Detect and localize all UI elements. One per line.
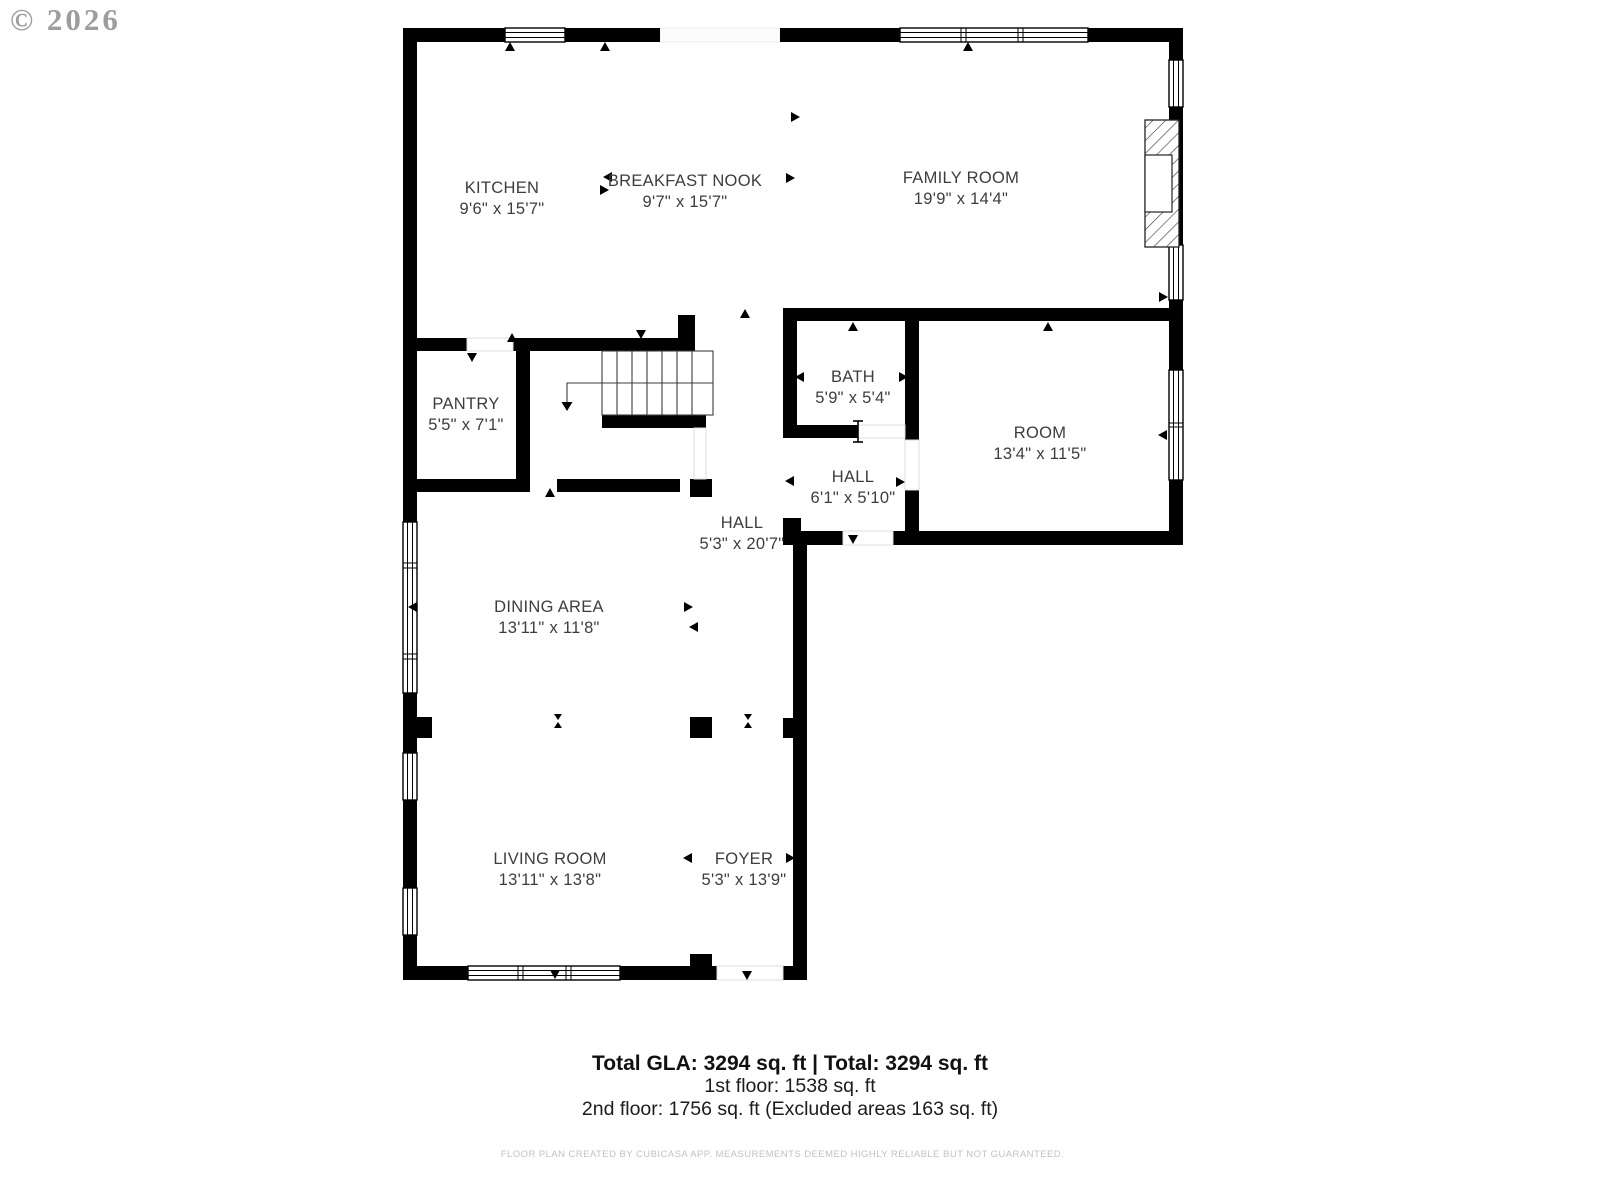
pantry-door-opening xyxy=(467,338,513,351)
dims-bath: 5'9" x 5'4" xyxy=(815,389,890,407)
opening-marker-icon xyxy=(600,42,610,51)
fireplace xyxy=(1145,120,1179,247)
first-floor-line: 1st floor: 1538 sq. ft xyxy=(0,1075,1580,1098)
opening-marker-icon xyxy=(786,173,795,183)
opening-marker-icon xyxy=(689,622,698,632)
opening-marker-icon xyxy=(505,42,515,51)
opening-marker-icon xyxy=(848,322,858,331)
dims-dining-area: 13'11" x 11'8" xyxy=(498,619,599,637)
divider-marker-icon xyxy=(744,714,752,728)
walls xyxy=(403,28,1183,980)
divider-marker-icon xyxy=(554,714,562,728)
opening-marker-icon xyxy=(785,476,794,486)
dims-hall-small: 6'1" x 5'10" xyxy=(811,489,896,507)
opening-marker-icon xyxy=(963,42,973,51)
floorplan-canvas: © 2026 xyxy=(0,0,1600,1200)
dims-kitchen: 9'6" x 15'7" xyxy=(460,200,545,218)
window-living-left-lower xyxy=(403,888,417,935)
dims-living-room: 13'11" x 13'8" xyxy=(499,871,602,889)
opening-marker-icon xyxy=(636,330,646,339)
understairs-opening xyxy=(694,428,706,479)
total-gla-line: Total GLA: 3294 sq. ft | Total: 3294 sq.… xyxy=(0,1052,1580,1075)
disclaimer-footer: FLOOR PLAN CREATED BY CUBICASA APP. MEAS… xyxy=(0,1149,1565,1160)
bath-door-opening xyxy=(858,425,905,438)
opening-marker-icon xyxy=(545,488,555,497)
opening-marker-icon xyxy=(467,353,477,362)
label-family-room: FAMILY ROOM xyxy=(903,169,1019,187)
label-hall-small: HALL xyxy=(832,468,874,486)
opening-marker-icon xyxy=(1158,430,1167,440)
label-pantry: PANTRY xyxy=(432,395,499,413)
label-kitchen: KITCHEN xyxy=(465,179,540,197)
label-bath: BATH xyxy=(831,368,875,386)
dims-room: 13'4" x 11'5" xyxy=(993,445,1086,463)
opening-marker-icon xyxy=(684,602,693,612)
opening-marker-icon xyxy=(683,853,692,863)
opening-marker-icon xyxy=(791,112,800,122)
staircase xyxy=(562,351,714,415)
label-room: ROOM xyxy=(1014,424,1067,442)
window-familyroom-top xyxy=(900,28,1088,42)
dims-family-room: 19'9" x 14'4" xyxy=(914,190,1008,208)
label-dining-area: DINING AREA xyxy=(494,598,604,616)
window-kitchen-top xyxy=(505,28,565,42)
second-floor-line: 2nd floor: 1756 sq. ft (Excluded areas 1… xyxy=(0,1098,1580,1121)
dims-foyer: 5'3" x 13'9" xyxy=(702,871,787,889)
floorplan-svg: KITCHEN 9'6" x 15'7" BREAKFAST NOOK 9'7"… xyxy=(0,0,1600,1200)
opening-marker-icon xyxy=(1159,292,1168,302)
stair-down-arrow xyxy=(562,402,573,411)
area-summary: Total GLA: 3294 sq. ft | Total: 3294 sq.… xyxy=(0,1052,1580,1120)
window-familyroom-right-upper xyxy=(1169,60,1183,107)
room-labels: KITCHEN 9'6" x 15'7" BREAKFAST NOOK 9'7"… xyxy=(428,169,1086,889)
opening-marker-icon xyxy=(1043,322,1053,331)
window-room-right xyxy=(1169,370,1183,480)
label-breakfast-nook: BREAKFAST NOOK xyxy=(608,172,762,190)
dims-breakfast-nook: 9'7" x 15'7" xyxy=(643,193,728,211)
window-familyroom-right-lower xyxy=(1169,245,1183,300)
label-foyer: FOYER xyxy=(715,850,773,868)
opening-marker-icon xyxy=(740,309,750,318)
dims-pantry: 5'5" x 7'1" xyxy=(428,416,503,434)
dims-hall-long: 5'3" x 20'7" xyxy=(700,535,785,553)
label-hall-long: HALL xyxy=(721,514,763,532)
stair-direction-line xyxy=(567,383,713,404)
window-living-left-upper xyxy=(403,753,417,800)
opening-marker-icon xyxy=(896,477,905,487)
open-edge xyxy=(660,28,780,42)
window-living-bottom xyxy=(468,966,620,980)
room-door-opening xyxy=(905,440,919,490)
label-living-room: LIVING ROOM xyxy=(493,850,606,868)
